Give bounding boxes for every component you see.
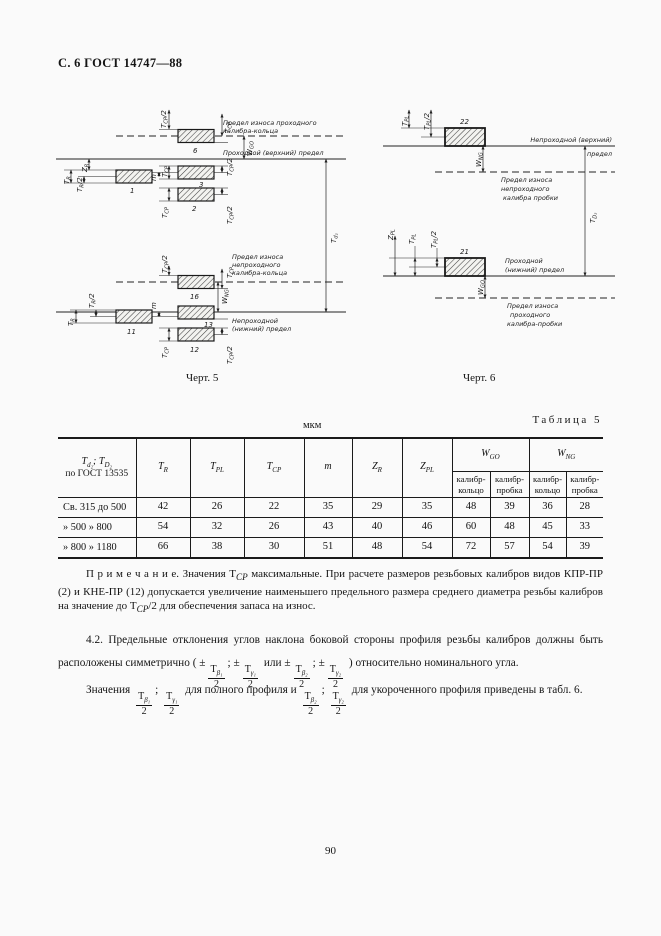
table-cell: 66 xyxy=(136,538,190,559)
para-text: для полного профиля и xyxy=(182,684,299,696)
table-row: Св. 315 до 500 42 26 22 35 29 35 48 39 3… xyxy=(58,498,603,518)
note-label: П р и м е ч а н и е. xyxy=(86,568,179,580)
dim-label-m: m xyxy=(150,174,158,181)
annotation-wear-ng-ring: калибра-кольца xyxy=(232,269,287,277)
annotation-ng-upper: Непроходной (верхний) xyxy=(530,136,612,144)
gauge-box-label: 6 xyxy=(193,147,198,155)
fraction-t-gamma2: Тγ₂2 xyxy=(331,692,346,717)
note-text: /2 для обеспечения запаса на износ. xyxy=(148,600,315,612)
table-header-row: Td₂; TD₂ по ГОСТ 13535 ТR ТPL ТСР m ZR Z… xyxy=(58,438,603,472)
col-header-line1: Td₂; TD₂ xyxy=(58,456,136,469)
table-cell: 36 xyxy=(529,498,566,518)
para-text: ; ± xyxy=(228,657,240,669)
dim-label-m: m xyxy=(150,302,158,309)
table-cell: 39 xyxy=(566,538,603,559)
gauge-box-label: 12 xyxy=(190,346,199,354)
gauge-box-22 xyxy=(445,128,485,146)
row-range: » 800 » 1180 xyxy=(58,538,136,559)
annotation-ng-upper: предел xyxy=(587,150,612,158)
table-cell: 54 xyxy=(402,538,452,559)
col-header-wgo: WGO xyxy=(452,438,529,472)
table-cell: 38 xyxy=(190,538,244,559)
note-paragraph: П р и м е ч а н и е. Значения ТСР максим… xyxy=(58,567,603,617)
dim-label-wng: WNG xyxy=(221,289,231,304)
dim-label-tcp-half: TCP/2 xyxy=(226,206,236,224)
annotation-wear-go-plug: калибра-пробки xyxy=(507,320,562,328)
gauge-box-label: 21 xyxy=(460,248,469,256)
fig5-annotations: Предел износа проходного калибра-кольца … xyxy=(223,119,324,333)
gauge-box-label: 2 xyxy=(192,205,197,213)
para-text: или ± xyxy=(261,657,291,669)
col-header-m: m xyxy=(304,438,352,498)
table-cell: 46 xyxy=(402,518,452,538)
table-row: » 800 » 1180 66 38 30 51 48 54 72 57 54 … xyxy=(58,538,603,559)
gauge-box-12 xyxy=(178,328,214,341)
table-cell: 22 xyxy=(244,498,304,518)
col-header-tr: ТR xyxy=(136,438,190,498)
paragraph-values: Значения Тβ₁2; Тγ₁2 для полного профиля … xyxy=(58,679,603,717)
table-cell: 26 xyxy=(190,498,244,518)
note-sub: СР xyxy=(236,572,248,582)
table-cell: 45 xyxy=(529,518,566,538)
para-text: для укороченного профиля приведены в таб… xyxy=(349,684,583,696)
row-range: » 500 » 800 xyxy=(58,518,136,538)
col-header-diameter-range: Td₂; TD₂ по ГОСТ 13535 xyxy=(58,438,136,498)
figure-5-drawing: 6 3 1 2 16 11 13 12 TCP/2 TCP WGO ZR TR … xyxy=(56,96,346,376)
dim-label-tcp: TCP xyxy=(161,206,171,218)
dim-label-zr: ZR xyxy=(81,163,91,173)
table-cell: 57 xyxy=(490,538,529,559)
dim-label-tcp: TCP xyxy=(161,346,171,358)
col-header-tcp: ТСР xyxy=(244,438,304,498)
para-text: Значения xyxy=(86,684,133,696)
annotation-wear-ng-ring: Предел износа xyxy=(232,253,283,261)
figure-5-caption: Черт. 5 xyxy=(186,372,218,384)
dim-label-tr-half: TR/2 xyxy=(88,293,98,308)
gauge-box-label: 11 xyxy=(127,328,136,336)
dim-label-tcp-half: TCP/2 xyxy=(226,158,236,176)
dim-label-tD2: TD₂ xyxy=(589,213,599,223)
col-header-tpl: ТPL xyxy=(190,438,244,498)
gauge-box-1 xyxy=(116,170,152,183)
para-text: ; ± xyxy=(313,657,325,669)
table-cell: 42 xyxy=(136,498,190,518)
annotation-go-upper: Проходной (верхний) предел xyxy=(223,149,324,157)
col-header-plug: калибр-пробка xyxy=(566,472,603,498)
annotation-ng-lower: Непроходной xyxy=(232,317,278,325)
table-cell: 51 xyxy=(304,538,352,559)
fig6-annotations: Непроходной (верхний) предел Предел изно… xyxy=(501,136,612,328)
dim-label-tpl: TPL xyxy=(408,234,418,244)
gauge-box-21 xyxy=(445,258,485,276)
fig6-limit-lines xyxy=(383,146,615,298)
fraction-t-gamma1: Тγ₁2 xyxy=(164,692,179,717)
table-cell: 40 xyxy=(352,518,402,538)
gauge-box-11 xyxy=(116,310,152,323)
fig5-gauge-boxes xyxy=(116,130,214,342)
gauge-box-3 xyxy=(178,166,214,179)
dim-label-td2: Td₂ xyxy=(330,233,340,243)
figure-6-drawing: 22 21 TPL TPL/2 WNG TD₂ ZPL TPL TPL/2 WG… xyxy=(383,98,623,338)
gauge-box-label: 1 xyxy=(130,187,134,195)
annotation-wear-go-ring: Предел износа проходного xyxy=(223,119,317,127)
annotation-wear-ng-plug: калибра пробки xyxy=(503,194,558,202)
table-cell: 26 xyxy=(244,518,304,538)
para-text: ; xyxy=(322,684,328,696)
fraction-t-beta1: Тβ₁2 xyxy=(136,692,152,717)
annotation-ng-lower: (нижний) предел xyxy=(232,325,291,333)
page-header: С. 6 ГОСТ 14747—88 xyxy=(58,56,182,71)
table-units-label: мкм xyxy=(303,420,321,431)
table-cell: 39 xyxy=(490,498,529,518)
fraction-t-beta2: Тβ₂2 xyxy=(303,692,319,717)
gauge-box-6 xyxy=(178,130,214,143)
annotation-wear-go-plug: Предел износа xyxy=(507,302,558,310)
para-text: ) относительно номинального угла. xyxy=(346,657,518,669)
fig5-dim-labels: TCP/2 TCP WGO ZR TR TR/2 m TCP TCP/2 TCP… xyxy=(63,110,340,364)
table-caption: Таблица 5 xyxy=(532,414,602,426)
annotation-wear-ng-plug: Предел износа xyxy=(501,176,552,184)
row-range: Св. 315 до 500 xyxy=(58,498,136,518)
table-cell: 48 xyxy=(352,538,402,559)
dim-label-tcp-half: TCP/2 xyxy=(226,346,236,364)
table-cell: 43 xyxy=(304,518,352,538)
table-cell: 72 xyxy=(452,538,490,559)
table-cell: 35 xyxy=(304,498,352,518)
gauge-box-label: 22 xyxy=(460,118,469,126)
annotation-wear-go-ring: калибра-кольца xyxy=(223,127,278,135)
table-cell: 30 xyxy=(244,538,304,559)
gauge-box-16 xyxy=(178,276,214,289)
col-header-wng: WNG xyxy=(529,438,603,472)
annotation-go-lower: Проходной xyxy=(505,257,543,265)
gauge-box-13 xyxy=(178,306,214,319)
table-cell: 48 xyxy=(490,518,529,538)
table-cell: 54 xyxy=(529,538,566,559)
para-text: ; xyxy=(155,684,161,696)
dim-label-tcp-half: TCP/2 xyxy=(160,110,170,128)
note-sub: СР xyxy=(137,604,149,614)
gauge-box-2 xyxy=(178,188,214,201)
page-number: 90 xyxy=(58,845,603,857)
col-header-ring: калибр-кольцо xyxy=(529,472,566,498)
col-header-ring: калибр-кольцо xyxy=(452,472,490,498)
annotation-wear-ng-plug: непроходного xyxy=(501,185,550,193)
table-cell: 28 xyxy=(566,498,603,518)
table-cell: 29 xyxy=(352,498,402,518)
table-cell: 48 xyxy=(452,498,490,518)
annotation-wear-ng-ring: непроходного xyxy=(232,261,281,269)
figure-6-caption: Черт. 6 xyxy=(463,372,495,384)
table-cell: 54 xyxy=(136,518,190,538)
col-header-plug: калибр-пробка xyxy=(490,472,529,498)
dim-label-tr: TR xyxy=(67,318,77,326)
table-row: » 500 » 800 54 32 26 43 40 46 60 48 45 3… xyxy=(58,518,603,538)
col-header-zr: ZR xyxy=(352,438,402,498)
gauge-box-label: 16 xyxy=(190,293,199,301)
table-cell: 33 xyxy=(566,518,603,538)
annotation-go-lower: (нижний) предел xyxy=(505,266,564,274)
gauge-box-label: 13 xyxy=(204,321,213,329)
table-cell: 32 xyxy=(190,518,244,538)
note-text: Значения Т xyxy=(179,568,236,580)
table-5: Td₂; TD₂ по ГОСТ 13535 ТR ТPL ТСР m ZR Z… xyxy=(58,437,603,559)
col-header-line2: по ГОСТ 13535 xyxy=(58,469,136,480)
dim-label-tpl-half: TPL/2 xyxy=(430,230,440,248)
table-cell: 35 xyxy=(402,498,452,518)
document-page: С. 6 ГОСТ 14747—88 xyxy=(0,0,661,936)
table-cell: 60 xyxy=(452,518,490,538)
col-header-zpl: ZPL xyxy=(402,438,452,498)
gauge-box-label: 3 xyxy=(199,181,203,189)
annotation-wear-go-plug: проходного xyxy=(510,311,550,319)
